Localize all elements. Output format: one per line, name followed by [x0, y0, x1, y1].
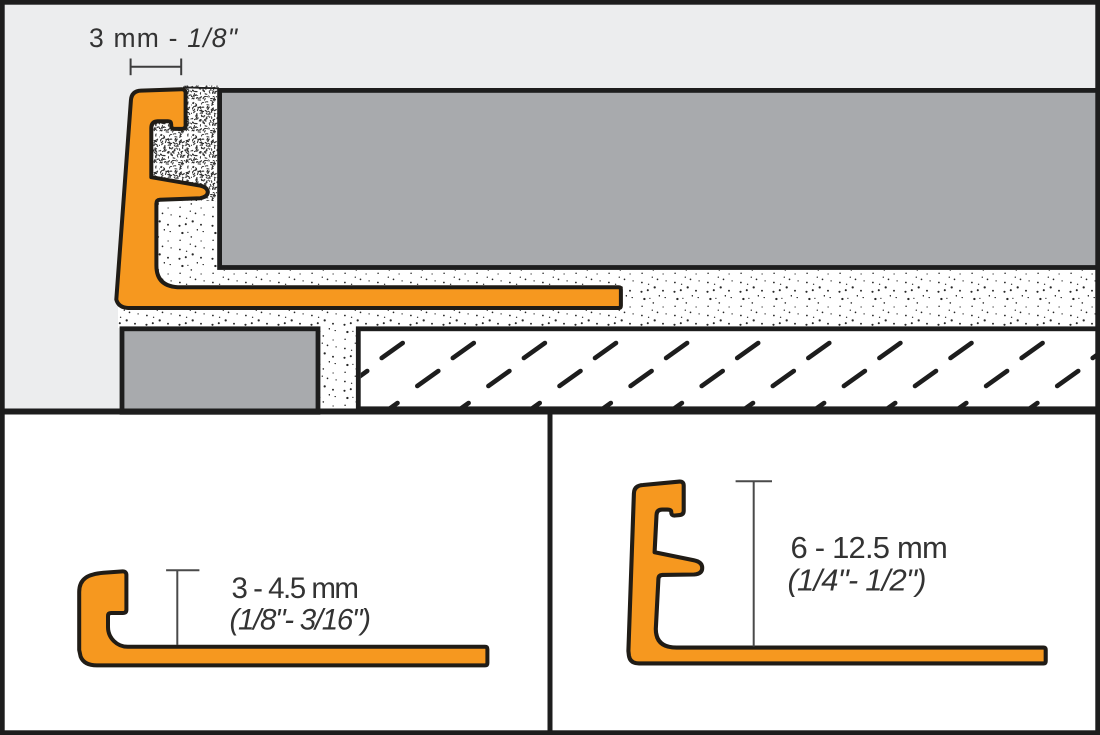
svg-text:3 mm - 1/8": 3 mm - 1/8"	[89, 23, 239, 53]
svg-text:3 - 4.5 mm: 3 - 4.5 mm	[232, 572, 358, 605]
svg-text:(1/8"- 3/16"): (1/8"- 3/16")	[230, 604, 371, 637]
svg-text:6 - 12.5 mm: 6 - 12.5 mm	[791, 530, 948, 565]
svg-text:(1/4"- 1/2"): (1/4"- 1/2")	[788, 563, 926, 598]
